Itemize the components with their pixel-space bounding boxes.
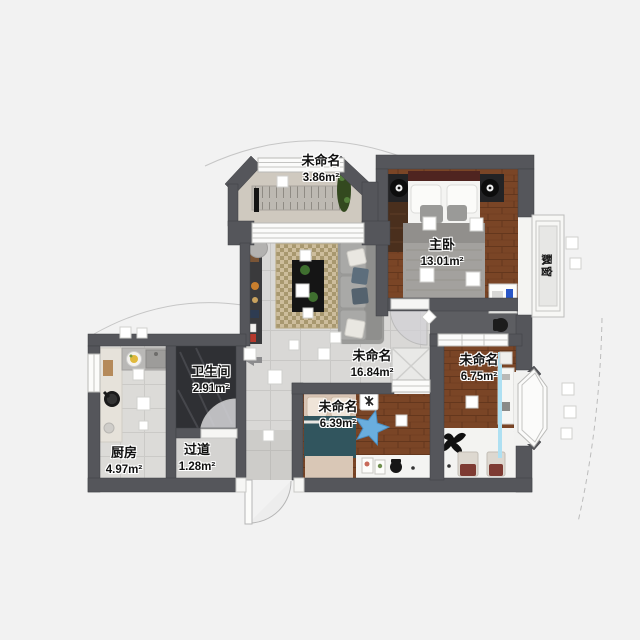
cutting-board	[103, 360, 113, 376]
light-icon[interactable]	[466, 396, 478, 408]
light-icon[interactable]	[566, 237, 578, 249]
light-icon[interactable]	[133, 369, 144, 380]
bay-window-label: 飘窗	[539, 254, 555, 278]
pot-icon	[104, 423, 114, 433]
cabinet-item	[500, 352, 512, 364]
floorplan-drawing	[0, 0, 640, 640]
pillow-blue	[351, 287, 369, 305]
floor-dot	[411, 466, 415, 470]
balcony-plant-icon	[344, 197, 350, 203]
wall[interactable]	[240, 243, 250, 346]
light-icon[interactable]	[139, 421, 148, 430]
wall[interactable]	[88, 478, 240, 492]
ceiling-fan-icon	[360, 392, 378, 410]
speaker-icon	[398, 187, 401, 190]
balcony-radiator	[254, 188, 259, 212]
wall[interactable]	[518, 169, 534, 217]
light-icon[interactable]	[318, 348, 330, 360]
photo-frame	[365, 462, 370, 467]
wall[interactable]	[228, 221, 254, 245]
small-chair[interactable]	[390, 459, 402, 473]
light-icon[interactable]	[561, 428, 572, 439]
light-icon[interactable]	[268, 370, 282, 384]
wall[interactable]	[362, 221, 390, 245]
camera-arc-right	[578, 318, 602, 522]
floorplan-canvas: 未命名 3.86m² 主卧 13.01m² 未命名 16.84m² 卫生间 2.…	[0, 0, 640, 640]
stool[interactable]	[458, 452, 478, 476]
light-icon[interactable]	[277, 176, 288, 187]
bathroom-door-jamb	[201, 429, 237, 438]
pillow-gray	[447, 205, 467, 221]
floor-hallway[interactable]	[176, 438, 236, 480]
light-icon[interactable]	[470, 218, 483, 231]
faucet-icon	[154, 352, 158, 356]
entry-jamb	[236, 478, 246, 492]
plant-icon	[300, 265, 310, 275]
corridor-sliding-door[interactable]	[438, 334, 508, 346]
glass-panel	[498, 352, 502, 458]
cabinet-item	[501, 374, 510, 380]
pillow	[331, 397, 351, 417]
light-icon[interactable]	[466, 272, 480, 286]
photo-frame	[378, 464, 382, 468]
wall[interactable]	[228, 184, 238, 226]
decor-plate	[252, 297, 258, 303]
decor-box	[250, 310, 259, 318]
fruit-icon	[130, 355, 133, 358]
light-icon[interactable]	[423, 217, 436, 230]
entry-jamb	[294, 478, 304, 492]
speaker-icon	[489, 187, 492, 190]
kitchen-counter[interactable]	[122, 348, 168, 370]
wall[interactable]	[298, 478, 532, 492]
light-icon[interactable]	[303, 308, 313, 318]
wall[interactable]	[508, 334, 522, 346]
dining-table[interactable]	[392, 348, 430, 384]
wall[interactable]	[88, 334, 246, 346]
light-icon[interactable]	[289, 340, 299, 350]
bed-bench	[305, 456, 353, 478]
light-icon[interactable]	[137, 397, 150, 410]
balcony-bench[interactable]	[252, 186, 346, 210]
camera-arc-left	[94, 303, 242, 334]
wok-icon	[104, 391, 120, 407]
pillow	[307, 397, 327, 417]
wall[interactable]	[236, 346, 246, 478]
pillow-blue	[351, 267, 369, 285]
cabinet-item	[501, 402, 510, 411]
light-icon[interactable]	[570, 258, 581, 269]
light-icon[interactable]	[562, 383, 574, 395]
light-icon[interactable]	[244, 348, 256, 360]
balcony-sill-window[interactable]	[252, 223, 364, 243]
light-icon[interactable]	[396, 415, 407, 426]
kitchen-window[interactable]	[88, 354, 100, 392]
stool[interactable]	[487, 452, 505, 476]
desk-chair[interactable]	[493, 318, 508, 332]
light-icon[interactable]	[300, 250, 311, 261]
bedroom-small-window[interactable]	[392, 380, 430, 392]
small-bed[interactable]	[304, 394, 356, 478]
light-icon[interactable]	[420, 268, 434, 282]
light-icon[interactable]	[330, 332, 341, 343]
wall[interactable]	[362, 182, 378, 226]
light-icon[interactable]	[137, 328, 147, 338]
light-icon[interactable]	[263, 430, 274, 441]
wall[interactable]	[376, 155, 534, 169]
wall[interactable]	[430, 334, 438, 346]
floor-dot	[447, 464, 451, 468]
light-icon[interactable]	[296, 284, 309, 297]
master-door-jamb	[391, 299, 429, 309]
wall[interactable]	[292, 383, 394, 394]
pillow-floral	[345, 319, 366, 339]
decor-bowl	[251, 282, 259, 290]
light-icon[interactable]	[564, 406, 576, 418]
entry-door-swing[interactable]	[249, 481, 291, 523]
wall[interactable]	[166, 346, 176, 480]
light-icon[interactable]	[120, 327, 131, 338]
balcony-top-window[interactable]	[258, 158, 344, 172]
wall[interactable]	[292, 383, 303, 480]
pillow-floral	[347, 248, 367, 266]
right-bay-window[interactable]	[514, 369, 547, 447]
wall[interactable]	[430, 334, 444, 480]
